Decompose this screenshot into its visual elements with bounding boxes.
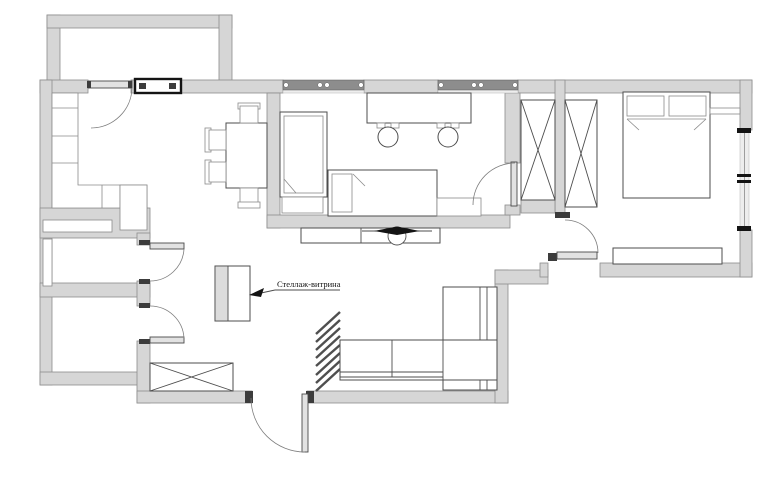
chair-arm: [391, 123, 399, 128]
door-swing-arc: [150, 306, 184, 338]
tv-unit: [301, 227, 440, 246]
wall-segment: [521, 200, 555, 213]
window-marker: [318, 83, 323, 88]
hall-wardrobe: [150, 363, 233, 391]
bed-foot-cabinet: [437, 198, 481, 216]
door-post: [555, 212, 570, 218]
bedroom-door: [548, 212, 598, 261]
counter-corner-cell: [120, 185, 147, 230]
wall-segment: [555, 80, 565, 213]
window-marker: [439, 83, 444, 88]
display-shelf: [215, 266, 250, 321]
door-post: [128, 81, 132, 88]
wall-segment: [40, 372, 138, 385]
window-marker: [325, 83, 330, 88]
wall-segment: [219, 15, 232, 88]
duct-niche: [43, 239, 52, 286]
bed-pillow: [669, 96, 706, 116]
dresser: [613, 248, 722, 264]
wall-niche: [43, 220, 112, 232]
kitchen-chair: [205, 160, 226, 184]
desk-chair: [437, 123, 459, 147]
door-leaf: [557, 252, 597, 259]
wall-segment: [40, 283, 150, 297]
door-post: [139, 339, 150, 344]
double-bed: [623, 92, 710, 198]
bathroom-door: [139, 240, 184, 284]
door-swing-arc: [251, 398, 305, 452]
door-leaf: [511, 162, 517, 206]
decorative-hatch: [316, 312, 340, 391]
toilet-door: [139, 303, 184, 344]
kitchen-chair: [205, 128, 226, 152]
chair-seat: [209, 130, 226, 150]
wall-segment: [181, 80, 283, 93]
door-post: [87, 81, 91, 88]
headboard-ledge: [710, 108, 740, 114]
balcony-door: [87, 81, 132, 128]
door-swing-arc: [565, 220, 598, 253]
shelf-annotation: Стеллаж-витрина: [249, 279, 341, 297]
wall-segment: [740, 230, 752, 277]
window-kids-right: [438, 80, 518, 93]
chair-seat-round: [378, 127, 398, 147]
window-kids-left: [283, 80, 364, 93]
desk: [367, 93, 471, 123]
window-marker: [737, 174, 751, 177]
wall-segment: [600, 263, 752, 277]
kids-room: [280, 93, 517, 216]
wall-segment: [364, 80, 438, 93]
door-leaf: [302, 394, 308, 452]
window-marker: [284, 83, 289, 88]
door-post: [139, 240, 150, 245]
door-swing-arc: [150, 249, 184, 281]
chair-arm: [437, 123, 445, 128]
wall-segment: [518, 80, 752, 93]
wall-segment: [740, 80, 752, 130]
bed-vertical: [280, 112, 327, 213]
window-marker: [737, 128, 751, 133]
window-band: [283, 80, 364, 90]
wall-segment: [505, 93, 520, 163]
window-marker: [472, 83, 477, 88]
floor-plan: Стеллаж-витрина: [0, 0, 770, 477]
bed-mattress: [284, 116, 323, 193]
shelf-side: [215, 266, 228, 321]
entrance-door: [245, 391, 314, 452]
wall-segment: [47, 15, 232, 28]
annotation-arrowhead: [249, 288, 264, 297]
window-unit-mark: [169, 83, 176, 89]
wall-segment: [505, 205, 520, 215]
window-marker: [513, 83, 518, 88]
wall-segment: [540, 263, 548, 277]
chair-seat: [240, 106, 258, 123]
window-marker: [479, 83, 484, 88]
kitchen-table-group: [205, 103, 267, 208]
door-leaf: [88, 81, 132, 88]
door-post: [548, 253, 557, 261]
wall-segment: [307, 391, 508, 403]
door-post: [245, 391, 253, 403]
bed-pillow: [627, 96, 664, 116]
chair-seat: [209, 162, 226, 182]
wall-segment: [137, 281, 150, 306]
tv-console: [301, 228, 440, 243]
wall-segment: [267, 215, 510, 228]
kitchen-chair: [238, 188, 260, 208]
window-unit-mark: [139, 83, 146, 89]
wardrobe-right: [565, 100, 597, 207]
chair-seat-round: [438, 127, 458, 147]
door-leaf: [150, 337, 184, 343]
hallway: Стеллаж-витрина: [150, 227, 497, 453]
kitchen-chair: [238, 103, 260, 123]
bed-horizontal: [328, 170, 481, 216]
kitchen-table: [226, 123, 267, 188]
chair-arm: [451, 123, 459, 128]
window-bedroom-east: [737, 128, 751, 231]
door-post: [139, 279, 150, 284]
floor-plan-page: Стеллаж-витрина: [0, 0, 770, 477]
wall-segment: [267, 93, 280, 228]
bed-pillow: [332, 174, 352, 212]
wardrobe-left: [521, 100, 555, 200]
chair-arm: [377, 123, 385, 128]
corner-sofa: [340, 287, 497, 390]
under-bed-drawer: [282, 197, 323, 213]
window-marker: [359, 83, 364, 88]
window-band: [438, 80, 518, 90]
kitchen-window-block: [135, 79, 181, 93]
door-post: [139, 303, 150, 308]
desk-chair: [377, 123, 399, 147]
chair-back: [238, 202, 260, 208]
wall-segment: [137, 391, 252, 403]
annotation-label: Стеллаж-витрина: [277, 279, 341, 289]
sofa-seat: [340, 340, 497, 380]
window-marker: [737, 226, 751, 231]
door-swing-arc: [91, 88, 132, 128]
window-marker: [737, 180, 751, 183]
door-leaf: [150, 243, 184, 249]
